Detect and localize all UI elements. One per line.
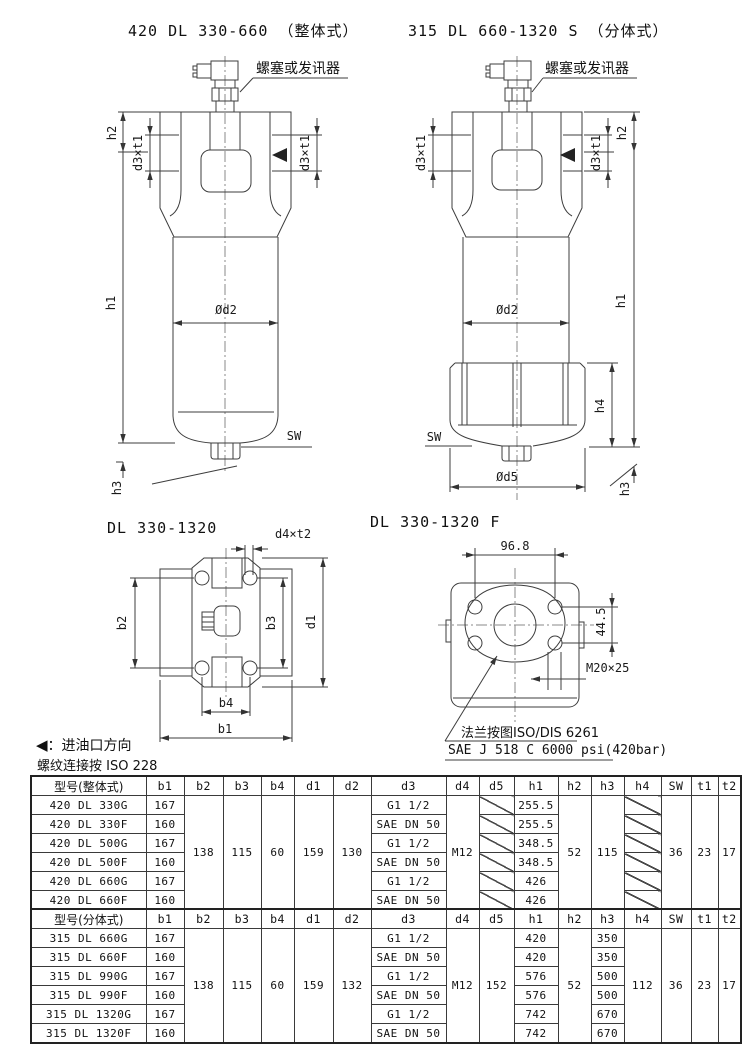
na-cell — [624, 796, 661, 815]
integral-filter-drawing — [116, 56, 348, 484]
cell-model: 315 DL 660F — [31, 948, 146, 967]
header-b1: b1 — [146, 909, 184, 929]
header-h2: h2 — [558, 909, 591, 929]
header-t1: t1 — [691, 776, 718, 796]
table-header-row: 型号(整体式) b1 b2 b3 b4 d1 d2 d3 d4 d5 h1 h2… — [31, 776, 741, 796]
cell-d3: SAE DN 50 — [371, 1024, 446, 1044]
integral-spec-table: 型号(整体式) b1 b2 b3 b4 d1 d2 d3 d4 d5 h1 h2… — [30, 775, 742, 911]
cell-t1: 23 — [691, 796, 718, 911]
cell-b1: 160 — [146, 986, 184, 1005]
table-header-row: 型号(分体式) b1 b2 b3 b4 d1 d2 d3 d4 d5 h1 h2… — [31, 909, 741, 929]
mounting-face-drawing — [130, 545, 328, 742]
cell-model: 420 DL 500G — [31, 834, 146, 853]
header-d2: d2 — [333, 909, 371, 929]
cell-d3: SAE DN 50 — [371, 815, 446, 834]
header-h1: h1 — [514, 776, 558, 796]
cell-b1: 167 — [146, 929, 184, 948]
cell-h1: 742 — [514, 1024, 558, 1044]
cell-h1: 348.5 — [514, 853, 558, 872]
header-h1: h1 — [514, 909, 558, 929]
cell-b1: 167 — [146, 967, 184, 986]
flange-standard-note: 法兰按图ISO/DIS 6261 — [461, 722, 599, 741]
cell-h2: 52 — [558, 929, 591, 1044]
dim-label-sw: SW — [287, 429, 301, 443]
dim-label-b3: b3 — [264, 616, 278, 630]
view-title-split: 315 DL 660-1320 S （分体式） — [408, 20, 669, 41]
table-row: 315 DL 660G 167 138 115 60 159 132 G1 1/… — [31, 929, 741, 948]
inlet-arrow-icon — [560, 148, 575, 162]
header-sw: SW — [661, 909, 691, 929]
cell-d3: G1 1/2 — [371, 834, 446, 853]
cell-h3: 670 — [591, 1024, 624, 1044]
cell-t2: 17 — [718, 796, 741, 911]
view-title-flange: DL 330-1320 F — [370, 513, 500, 531]
table-row: 420 DL 500G 167 G1 1/2 348.5 — [31, 834, 741, 853]
cell-d2: 130 — [333, 796, 371, 911]
cell-h3: 670 — [591, 1005, 624, 1024]
header-model: 型号(整体式) — [31, 776, 146, 796]
cell-b1: 160 — [146, 948, 184, 967]
sae-standard-note: SAE J 518 C 6000 psi(420bar) — [448, 743, 667, 758]
cell-model: 315 DL 660G — [31, 929, 146, 948]
cell-b1: 167 — [146, 872, 184, 891]
plug-sensor-label: 螺塞或发讯器 — [545, 58, 629, 78]
dim-label-sw: SW — [427, 430, 441, 444]
na-cell — [624, 872, 661, 891]
cell-h3: 500 — [591, 967, 624, 986]
split-filter-drawing — [425, 56, 640, 500]
cell-model: 315 DL 990F — [31, 986, 146, 1005]
na-cell — [624, 853, 661, 872]
technical-drawings — [0, 0, 750, 775]
cell-model: 315 DL 990G — [31, 967, 146, 986]
dim-label-h4: h4 — [593, 399, 607, 413]
header-h3: h3 — [591, 776, 624, 796]
split-spec-table: 型号(分体式) b1 b2 b3 b4 d1 d2 d3 d4 d5 h1 h2… — [30, 908, 742, 1044]
cell-h1: 576 — [514, 986, 558, 1005]
header-b3: b3 — [223, 776, 261, 796]
dim-label-flange-width: 96.8 — [501, 539, 530, 553]
dim-label-d3t1: d3×t1 — [298, 135, 312, 171]
cell-h3: 350 — [591, 929, 624, 948]
dim-label-h3: h3 — [618, 482, 632, 496]
cell-h1: 255.5 — [514, 796, 558, 815]
cell-b3: 115 — [223, 796, 261, 911]
cell-t2: 17 — [718, 929, 741, 1044]
cell-d3: SAE DN 50 — [371, 948, 446, 967]
inlet-direction-legend: ◀：进油口方向 — [36, 735, 132, 755]
cell-model: 420 DL 500F — [31, 853, 146, 872]
view-title-bottom: DL 330-1320 — [107, 519, 217, 537]
cell-d1: 159 — [294, 796, 333, 911]
cell-b1: 167 — [146, 1005, 184, 1024]
cell-b2: 138 — [184, 796, 223, 911]
header-h2: h2 — [558, 776, 591, 796]
header-t2: t2 — [718, 909, 741, 929]
plug-sensor-label: 螺塞或发讯器 — [256, 58, 340, 78]
header-d4: d4 — [446, 776, 479, 796]
table-row: 420 DL 330F 160 SAE DN 50 255.5 — [31, 815, 741, 834]
cell-h4: 112 — [624, 929, 661, 1044]
na-cell — [479, 853, 514, 872]
header-b4: b4 — [261, 909, 294, 929]
cell-h2: 52 — [558, 796, 591, 911]
cell-d1: 159 — [294, 929, 333, 1044]
dim-label-b2: b2 — [115, 616, 129, 630]
dim-label-d4t2: d4×t2 — [275, 527, 311, 541]
cell-h1: 420 — [514, 929, 558, 948]
cell-d3: G1 1/2 — [371, 929, 446, 948]
inlet-arrow-icon: ◀ — [36, 736, 48, 754]
cell-d3: G1 1/2 — [371, 1005, 446, 1024]
header-b2: b2 — [184, 776, 223, 796]
header-t2: t2 — [718, 776, 741, 796]
table-row: 420 DL 500F 160 SAE DN 50 348.5 — [31, 853, 741, 872]
cell-h1: 420 — [514, 948, 558, 967]
dim-label-d3t1: d3×t1 — [589, 135, 603, 171]
dim-label-d3t1: d3×t1 — [414, 135, 428, 171]
cell-d4: M12 — [446, 929, 479, 1044]
dim-label-thread: M20×25 — [586, 661, 629, 675]
dim-label-flange-height: 44.5 — [594, 608, 608, 637]
cell-b1: 160 — [146, 1024, 184, 1044]
header-b1: b1 — [146, 776, 184, 796]
na-cell — [479, 872, 514, 891]
cell-sw: 36 — [661, 796, 691, 911]
cell-d3: G1 1/2 — [371, 796, 446, 815]
header-model: 型号(分体式) — [31, 909, 146, 929]
header-t1: t1 — [691, 909, 718, 929]
cell-b1: 167 — [146, 834, 184, 853]
cell-b1: 167 — [146, 796, 184, 815]
header-b2: b2 — [184, 909, 223, 929]
cell-t1: 23 — [691, 929, 718, 1044]
datasheet-page: 420 DL 330-660 （整体式） 315 DL 660-1320 S （… — [0, 0, 750, 1064]
cell-h1: 348.5 — [514, 834, 558, 853]
cell-h1: 255.5 — [514, 815, 558, 834]
view-title-integral: 420 DL 330-660 （整体式） — [128, 20, 358, 41]
dim-label-b1: b1 — [218, 722, 232, 736]
cell-b4: 60 — [261, 796, 294, 911]
cell-model: 315 DL 1320F — [31, 1024, 146, 1044]
inlet-direction-text: ：进油口方向 — [48, 738, 132, 754]
header-d5: d5 — [479, 909, 514, 929]
header-d4: d4 — [446, 909, 479, 929]
na-cell — [479, 796, 514, 815]
cell-model: 420 DL 330G — [31, 796, 146, 815]
na-cell — [479, 834, 514, 853]
cell-d3: G1 1/2 — [371, 967, 446, 986]
cell-d3: SAE DN 50 — [371, 986, 446, 1005]
cell-b1: 160 — [146, 853, 184, 872]
header-h3: h3 — [591, 909, 624, 929]
cell-d4: M12 — [446, 796, 479, 911]
header-sw: SW — [661, 776, 691, 796]
cell-b4: 60 — [261, 929, 294, 1044]
dim-label-h1: h1 — [104, 296, 118, 310]
dim-label-b4: b4 — [219, 696, 233, 710]
cell-b3: 115 — [223, 929, 261, 1044]
cell-model: 420 DL 330F — [31, 815, 146, 834]
dim-label-d3t1: d3×t1 — [131, 135, 145, 171]
header-h4: h4 — [624, 909, 661, 929]
dim-label-d1: d1 — [304, 615, 318, 629]
dim-label-h3: h3 — [110, 481, 124, 495]
cell-sw: 36 — [661, 929, 691, 1044]
table-row: 420 DL 660G 167 G1 1/2 426 — [31, 872, 741, 891]
header-d2: d2 — [333, 776, 371, 796]
inlet-arrow-icon — [272, 148, 287, 162]
cell-b1: 160 — [146, 815, 184, 834]
dim-label-h1: h1 — [614, 294, 628, 308]
na-cell — [624, 815, 661, 834]
cell-b2: 138 — [184, 929, 223, 1044]
cell-h3: 350 — [591, 948, 624, 967]
table-row: 420 DL 330G 167 138 115 60 159 130 G1 1/… — [31, 796, 741, 815]
na-cell — [624, 834, 661, 853]
header-h4: h4 — [624, 776, 661, 796]
na-cell — [479, 815, 514, 834]
dim-label-od5: Ød5 — [496, 470, 518, 484]
cell-d5: 152 — [479, 929, 514, 1044]
cell-h1: 576 — [514, 967, 558, 986]
cell-model: 315 DL 1320G — [31, 1005, 146, 1024]
cell-d3: SAE DN 50 — [371, 853, 446, 872]
header-d3: d3 — [371, 776, 446, 796]
cell-model: 420 DL 660G — [31, 872, 146, 891]
header-b4: b4 — [261, 776, 294, 796]
header-d3: d3 — [371, 909, 446, 929]
dim-label-od2: Ød2 — [215, 303, 237, 317]
cell-h1: 742 — [514, 1005, 558, 1024]
dim-label-h2: h2 — [105, 126, 119, 140]
dim-label-h2: h2 — [615, 126, 629, 140]
header-b3: b3 — [223, 909, 261, 929]
cell-h1: 426 — [514, 872, 558, 891]
cell-d3: G1 1/2 — [371, 872, 446, 891]
header-d1: d1 — [294, 776, 333, 796]
header-d5: d5 — [479, 776, 514, 796]
header-d1: d1 — [294, 909, 333, 929]
cell-h3: 500 — [591, 986, 624, 1005]
cell-h3: 115 — [591, 796, 624, 911]
dim-label-od2: Ød2 — [496, 303, 518, 317]
thread-standard-note: 螺纹连接按 ISO 228 — [37, 755, 157, 774]
cell-d2: 132 — [333, 929, 371, 1044]
